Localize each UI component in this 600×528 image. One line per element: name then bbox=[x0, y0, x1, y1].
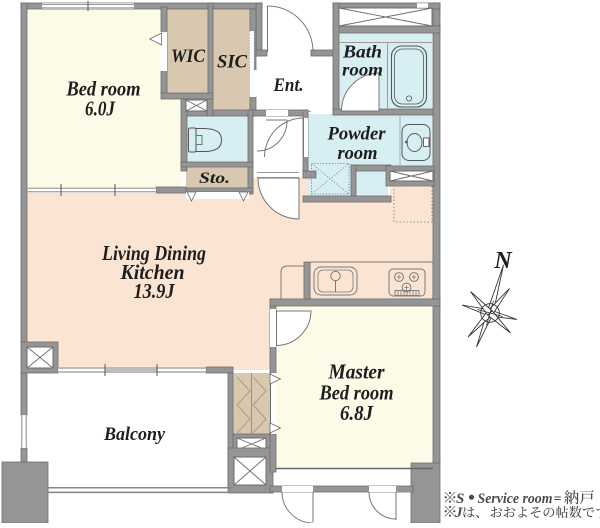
svg-text:Balcony: Balcony bbox=[103, 425, 166, 445]
svg-text:6.0J: 6.0J bbox=[85, 97, 116, 121]
svg-text:room: room bbox=[342, 60, 383, 80]
svg-text:WIC: WIC bbox=[171, 46, 205, 67]
svg-text:Bath: Bath bbox=[342, 42, 382, 62]
svg-text:=: = bbox=[554, 492, 562, 507]
svg-text:13.9J: 13.9J bbox=[134, 279, 176, 303]
svg-text:Sto.: Sto. bbox=[199, 170, 230, 187]
svg-text:Powder: Powder bbox=[327, 124, 387, 145]
svg-text:N: N bbox=[493, 248, 513, 274]
svg-text:SIC: SIC bbox=[217, 53, 248, 73]
svg-text:Service room: Service room bbox=[478, 491, 553, 507]
svg-text:J: J bbox=[454, 505, 463, 521]
svg-text:Ent.: Ent. bbox=[273, 76, 304, 96]
svg-text:6.8J: 6.8J bbox=[340, 401, 374, 425]
svg-text:room: room bbox=[338, 143, 378, 164]
